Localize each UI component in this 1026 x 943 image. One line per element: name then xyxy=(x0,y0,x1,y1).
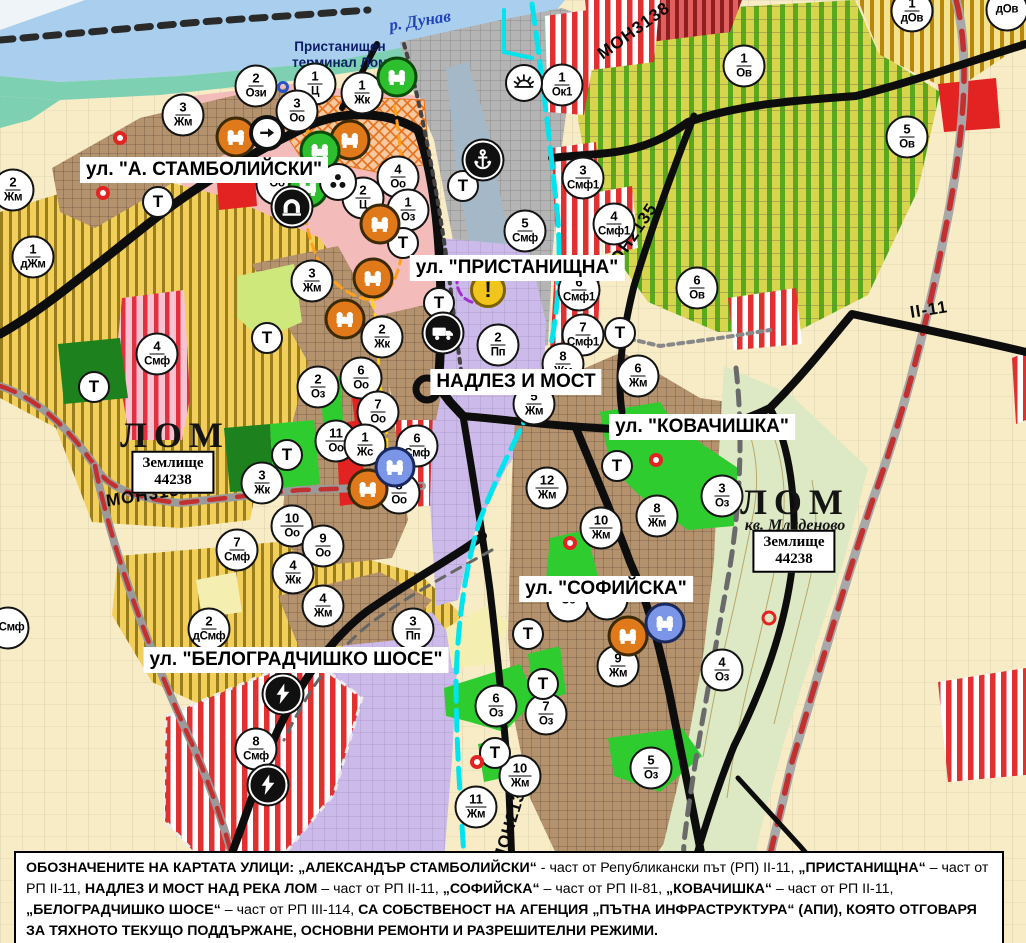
basemap-svg xyxy=(0,0,1026,943)
map-canvas[interactable]: МОН3139МОН3138МОН2135МОН2136II-11 ЛОМЛОМ… xyxy=(0,0,1026,943)
zones-layer xyxy=(0,0,1026,943)
legend-note: ОБОЗНАЧЕНИТЕ НА КАРТАТА УЛИЦИ: „АЛЕКСАНД… xyxy=(14,851,1004,943)
